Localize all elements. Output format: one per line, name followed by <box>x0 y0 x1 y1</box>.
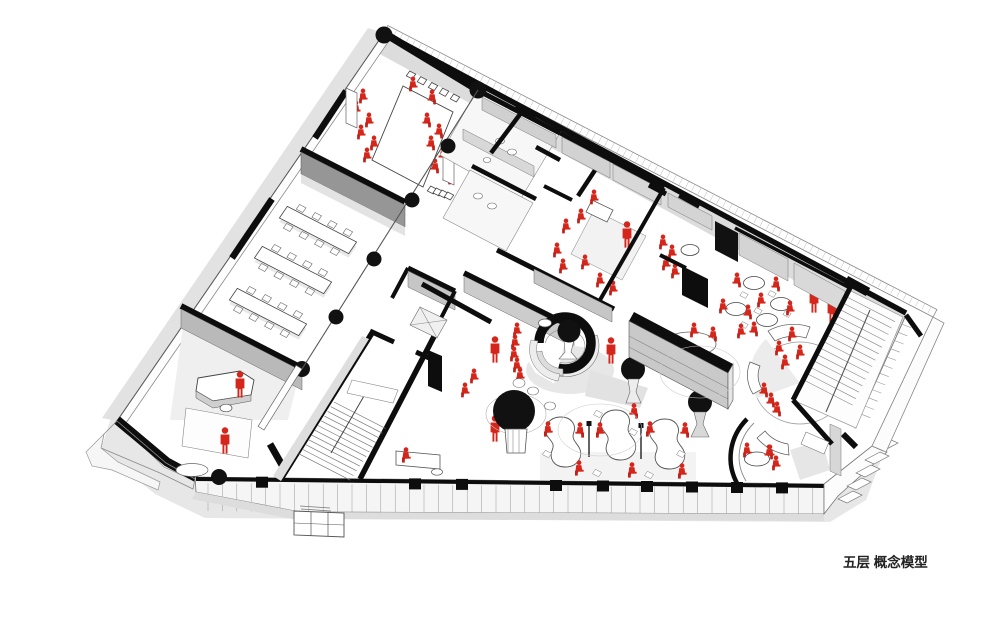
svg-text:五层 概念模型: 五层 概念模型 <box>843 554 928 570</box>
